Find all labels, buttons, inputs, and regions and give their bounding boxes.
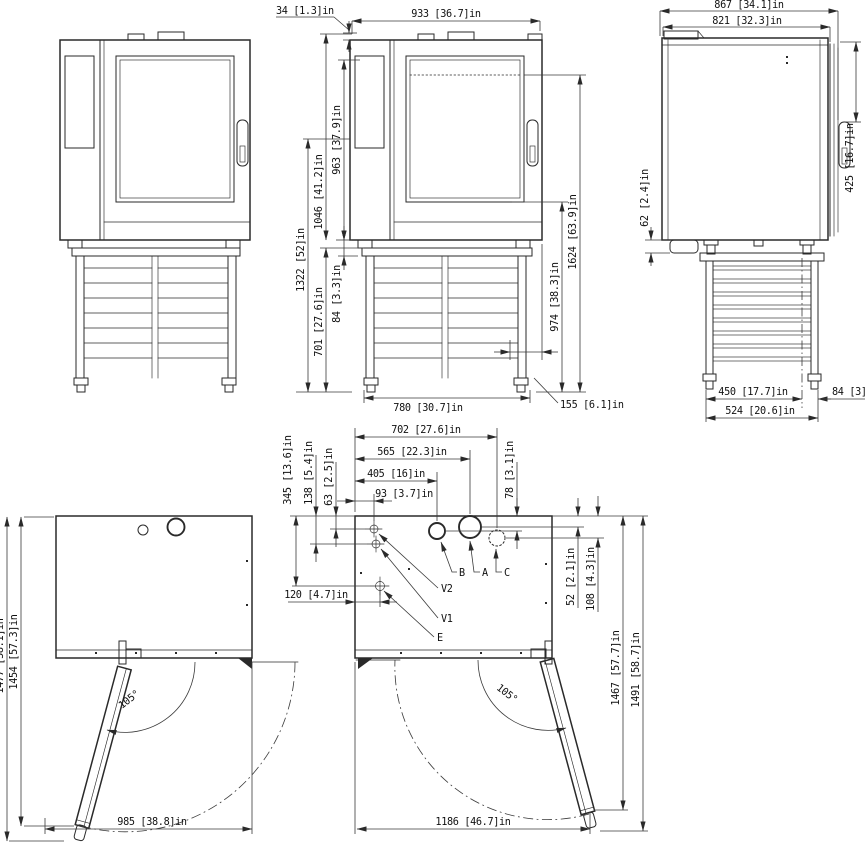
top-view-connections: 105° 702 [27.6]in 565 [22.3]in 405 [16]i… bbox=[283, 425, 648, 834]
dim-v2-y-label: 63 [2.5]in bbox=[324, 448, 335, 506]
control-panel-display bbox=[65, 56, 94, 148]
dim-width-open-label: 985 [38.8]in bbox=[117, 817, 187, 828]
dim-leg-offset-label: 84 [3]in bbox=[832, 387, 865, 398]
label-c: C bbox=[504, 568, 510, 579]
door-catch-wedge bbox=[358, 658, 373, 669]
dim-depth-tip-label: 1467 [57.7]in bbox=[611, 630, 622, 705]
door-catch-wedge bbox=[238, 658, 252, 669]
vent-pipe-large bbox=[168, 519, 185, 536]
door-window bbox=[116, 56, 234, 202]
dim-stand-width-label: 780 [30.7]in bbox=[393, 403, 463, 414]
dim-v-x-label: 93 [3.7]in bbox=[375, 489, 433, 500]
vent-pipe-small bbox=[138, 525, 148, 535]
dim-b-y-label: 78 [3.1]in bbox=[505, 441, 516, 499]
door-angle-label: 105° bbox=[117, 689, 142, 712]
connection-point-b bbox=[429, 523, 445, 539]
label-b: B bbox=[459, 568, 465, 579]
dim-a-y-label: 52 [2.1]in bbox=[566, 548, 577, 606]
door-hinge bbox=[119, 641, 126, 664]
control-panel-display bbox=[355, 56, 384, 148]
front-view-dimensioned: 933 [36.7]in 34 [1.3]in 963 [37.9]in 104… bbox=[276, 6, 624, 414]
dim-stand-depth-label: 524 [20.6]in bbox=[725, 406, 795, 417]
dim-cap-label: 34 [1.3]in bbox=[276, 6, 334, 17]
dim-handle-top-label: 425 [16.7]in bbox=[845, 123, 856, 193]
label-v1: V1 bbox=[441, 614, 453, 625]
label-v2: V2 bbox=[441, 584, 453, 595]
stand-center bbox=[362, 248, 532, 392]
dim-depth-open-label: 1454 [57.3]in bbox=[9, 614, 20, 689]
top-view-closed-door-open: 105° 1454 [57.3]in 1477 [58.1]in 985 [38… bbox=[0, 516, 298, 842]
dim-b-x-label: 405 [16]in bbox=[367, 469, 425, 480]
dim-depth-total-label: 867 [34.1]in bbox=[714, 0, 784, 11]
dim-body-height-label: 1046 [41.2]in bbox=[314, 154, 325, 229]
dim-drain-height-label: 62 [2.4]in bbox=[640, 169, 651, 227]
dim-mid-height-label: 1322 [52]in bbox=[296, 228, 307, 292]
dim-depth-handle-label: 1491 [58.7]in bbox=[631, 632, 642, 707]
open-door bbox=[72, 666, 132, 842]
connection-point-a bbox=[459, 516, 481, 538]
dim-e-y-label: 345 [13.6]in bbox=[283, 435, 294, 505]
door-swing-arc bbox=[81, 662, 295, 832]
drain-pipe bbox=[670, 240, 698, 253]
dim-window-floor-label: 974 [38.3]in bbox=[550, 262, 561, 332]
door-angle-arc bbox=[107, 662, 195, 732]
front-view-left bbox=[60, 32, 250, 392]
dim-c-x-label: 702 [27.6]in bbox=[391, 425, 461, 436]
label-e: E bbox=[437, 633, 443, 644]
dim-foot-height-label: 84 [3.3]in bbox=[332, 265, 343, 323]
tray-rack-stand bbox=[700, 253, 824, 408]
dim-stand-height-label: 701 [27.6]in bbox=[314, 287, 325, 357]
dim-leg-inset-label: 155 [6.1]in bbox=[560, 400, 624, 411]
door-angle-label: 105° bbox=[494, 683, 519, 706]
dim-depth-outer-label: 1477 [58.1]in bbox=[0, 618, 6, 693]
door-handle bbox=[527, 120, 538, 166]
dim-width-label: 933 [36.7]in bbox=[411, 9, 481, 20]
door-angle-arc bbox=[478, 660, 566, 730]
stand-left bbox=[72, 248, 240, 392]
dim-e-x-label: 120 [4.7]in bbox=[284, 590, 348, 601]
door-handle bbox=[237, 120, 248, 166]
open-door bbox=[540, 658, 598, 829]
dim-door-height-label: 963 [37.9]in bbox=[332, 105, 343, 175]
dim-a-x-label: 565 [22.3]in bbox=[377, 447, 447, 458]
dim-v1-y-label: 138 [5.4]in bbox=[304, 441, 315, 505]
dim-depth-body-label: 821 [32.3]in bbox=[712, 16, 782, 27]
dim-leg-spacing-label: 450 [17.7]in bbox=[718, 387, 788, 398]
door-window bbox=[406, 56, 524, 202]
dim-total-height-label: 1624 [63.9]in bbox=[568, 194, 579, 269]
label-a: A bbox=[482, 568, 488, 579]
oven-dimension-drawing: 933 [36.7]in 34 [1.3]in 963 [37.9]in 104… bbox=[0, 0, 865, 848]
dim-width-open-label: 1186 [46.7]in bbox=[435, 817, 510, 828]
dim-c-y-label: 108 [4.3]in bbox=[586, 547, 597, 611]
side-view: 867 [34.1]in 821 [32.3]in 425 [16.7]in 6… bbox=[640, 0, 865, 422]
connection-point-c bbox=[489, 530, 505, 546]
